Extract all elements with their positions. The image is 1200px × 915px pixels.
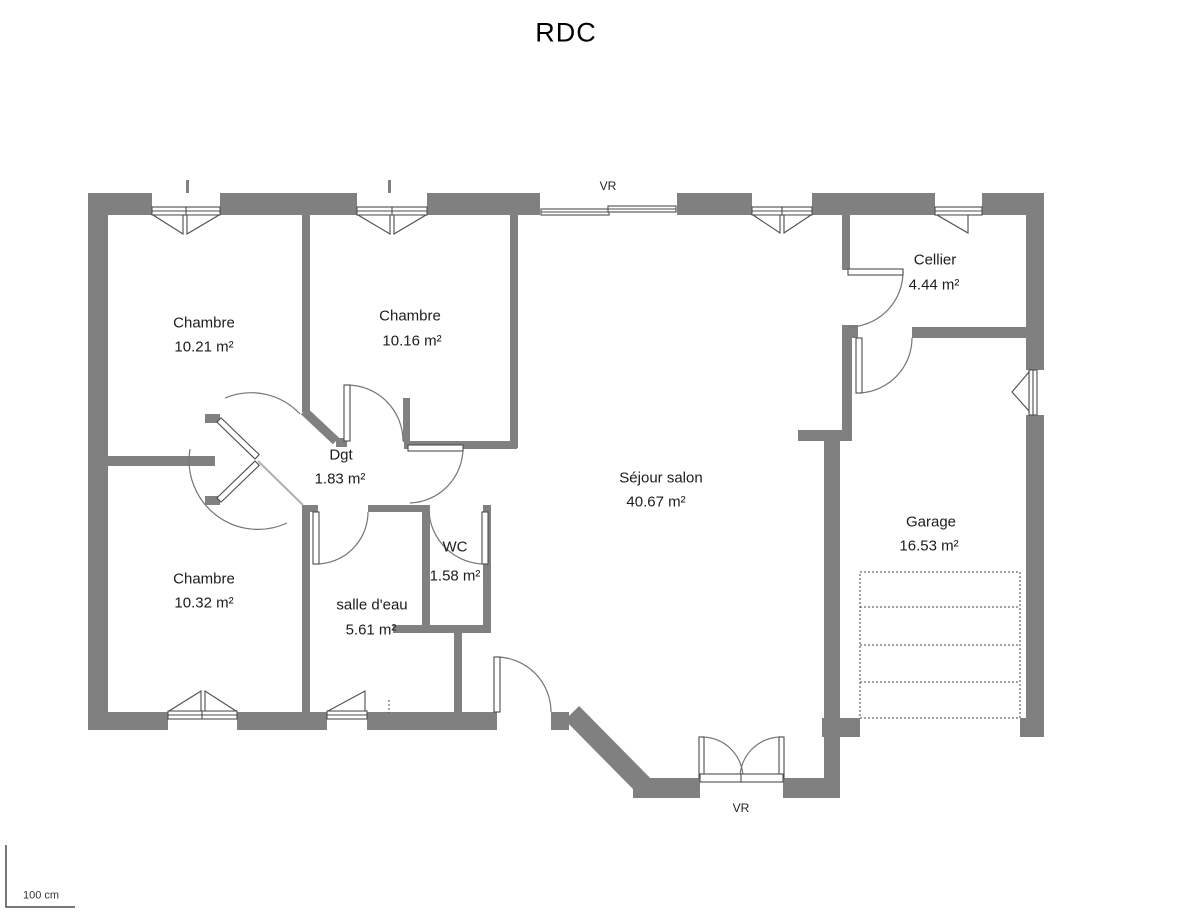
- leaf-chambre-1021-door: [217, 418, 259, 459]
- floor-plan-drawing: [0, 0, 1200, 915]
- arc-cellier-door: [848, 272, 903, 327]
- arc-french-door-left: [702, 737, 743, 779]
- window-chambre-1021: [152, 207, 220, 234]
- vr-label-top: VR: [600, 180, 617, 192]
- arc-entry-door: [497, 657, 551, 712]
- room-area-chambre-1021: 10.21 m²: [174, 340, 233, 355]
- room-name-cellier: Cellier: [914, 253, 957, 268]
- room-area-dgt: 1.83 m²: [315, 472, 366, 487]
- leaf-chambre-1032-door: [217, 461, 259, 502]
- leaf-french-door-left: [699, 737, 704, 778]
- room-area-wc: 1.58 m²: [430, 569, 481, 584]
- room-name-chambre-1021: Chambre: [173, 316, 235, 331]
- door-arcs: [189, 272, 912, 779]
- leaf-cellier-door: [848, 269, 903, 275]
- vr-label-bottom: VR: [733, 802, 750, 814]
- window-vr-sliding: [541, 206, 676, 215]
- window-chambre-1016: [357, 207, 427, 234]
- plan-title: RDC: [535, 20, 597, 47]
- room-area-salle-deau: 5.61 m²: [346, 623, 397, 638]
- room-name-wc: WC: [443, 540, 468, 555]
- window-chambre-1032: [168, 691, 237, 719]
- leaf-entry-door: [494, 657, 500, 712]
- room-name-chambre-1032: Chambre: [173, 572, 235, 587]
- scale-bar-label: 100 cm: [23, 891, 59, 902]
- leaf-wc-door: [482, 512, 488, 564]
- arc-chambre-1016-door: [347, 385, 403, 441]
- arc-garage-cellier-door: [859, 338, 912, 393]
- floor-plan: RDC Chambre 10.21 m² Chambre 10.16 m² Ch…: [0, 0, 1200, 915]
- door-leaves: [217, 269, 903, 782]
- room-name-chambre-1016: Chambre: [379, 309, 441, 324]
- window-sejour: [752, 207, 812, 233]
- room-name-salle-deau: salle d'eau: [336, 598, 407, 613]
- arc-french-door-right: [740, 737, 781, 779]
- windows: [152, 206, 1037, 719]
- hall-thin-partition: [258, 461, 303, 505]
- leaf-french-door-right: [779, 737, 784, 778]
- window-salle-deau: [327, 691, 367, 719]
- arc-chambre-1021-door: [225, 393, 300, 414]
- window-garage: [1012, 370, 1037, 415]
- garage-door: [860, 572, 1020, 718]
- interior-walls: [108, 215, 518, 712]
- room-name-dgt: Dgt: [329, 448, 352, 463]
- leaf-garage-cellier-door: [856, 338, 862, 393]
- leaf-hall-sejour-door: [408, 445, 463, 451]
- leaf-chambre-1016-door: [344, 385, 350, 441]
- room-area-chambre-1016: 10.16 m²: [382, 334, 441, 349]
- room-area-chambre-1032: 10.32 m²: [174, 596, 233, 611]
- room-area-sejour: 40.67 m²: [626, 495, 685, 510]
- room-name-garage: Garage: [906, 515, 956, 530]
- room-area-cellier: 4.44 m²: [909, 278, 960, 293]
- arc-hall-sejour-door: [410, 448, 463, 503]
- arc-salle-deau-door: [316, 512, 368, 564]
- window-cellier: [935, 207, 982, 233]
- leaf-salle-deau-door: [313, 512, 319, 564]
- room-name-sejour: Séjour salon: [619, 471, 702, 486]
- room-area-garage: 16.53 m²: [899, 539, 958, 554]
- hall-diagonal-wall: [304, 411, 336, 441]
- diagonal-wall: [572, 713, 645, 787]
